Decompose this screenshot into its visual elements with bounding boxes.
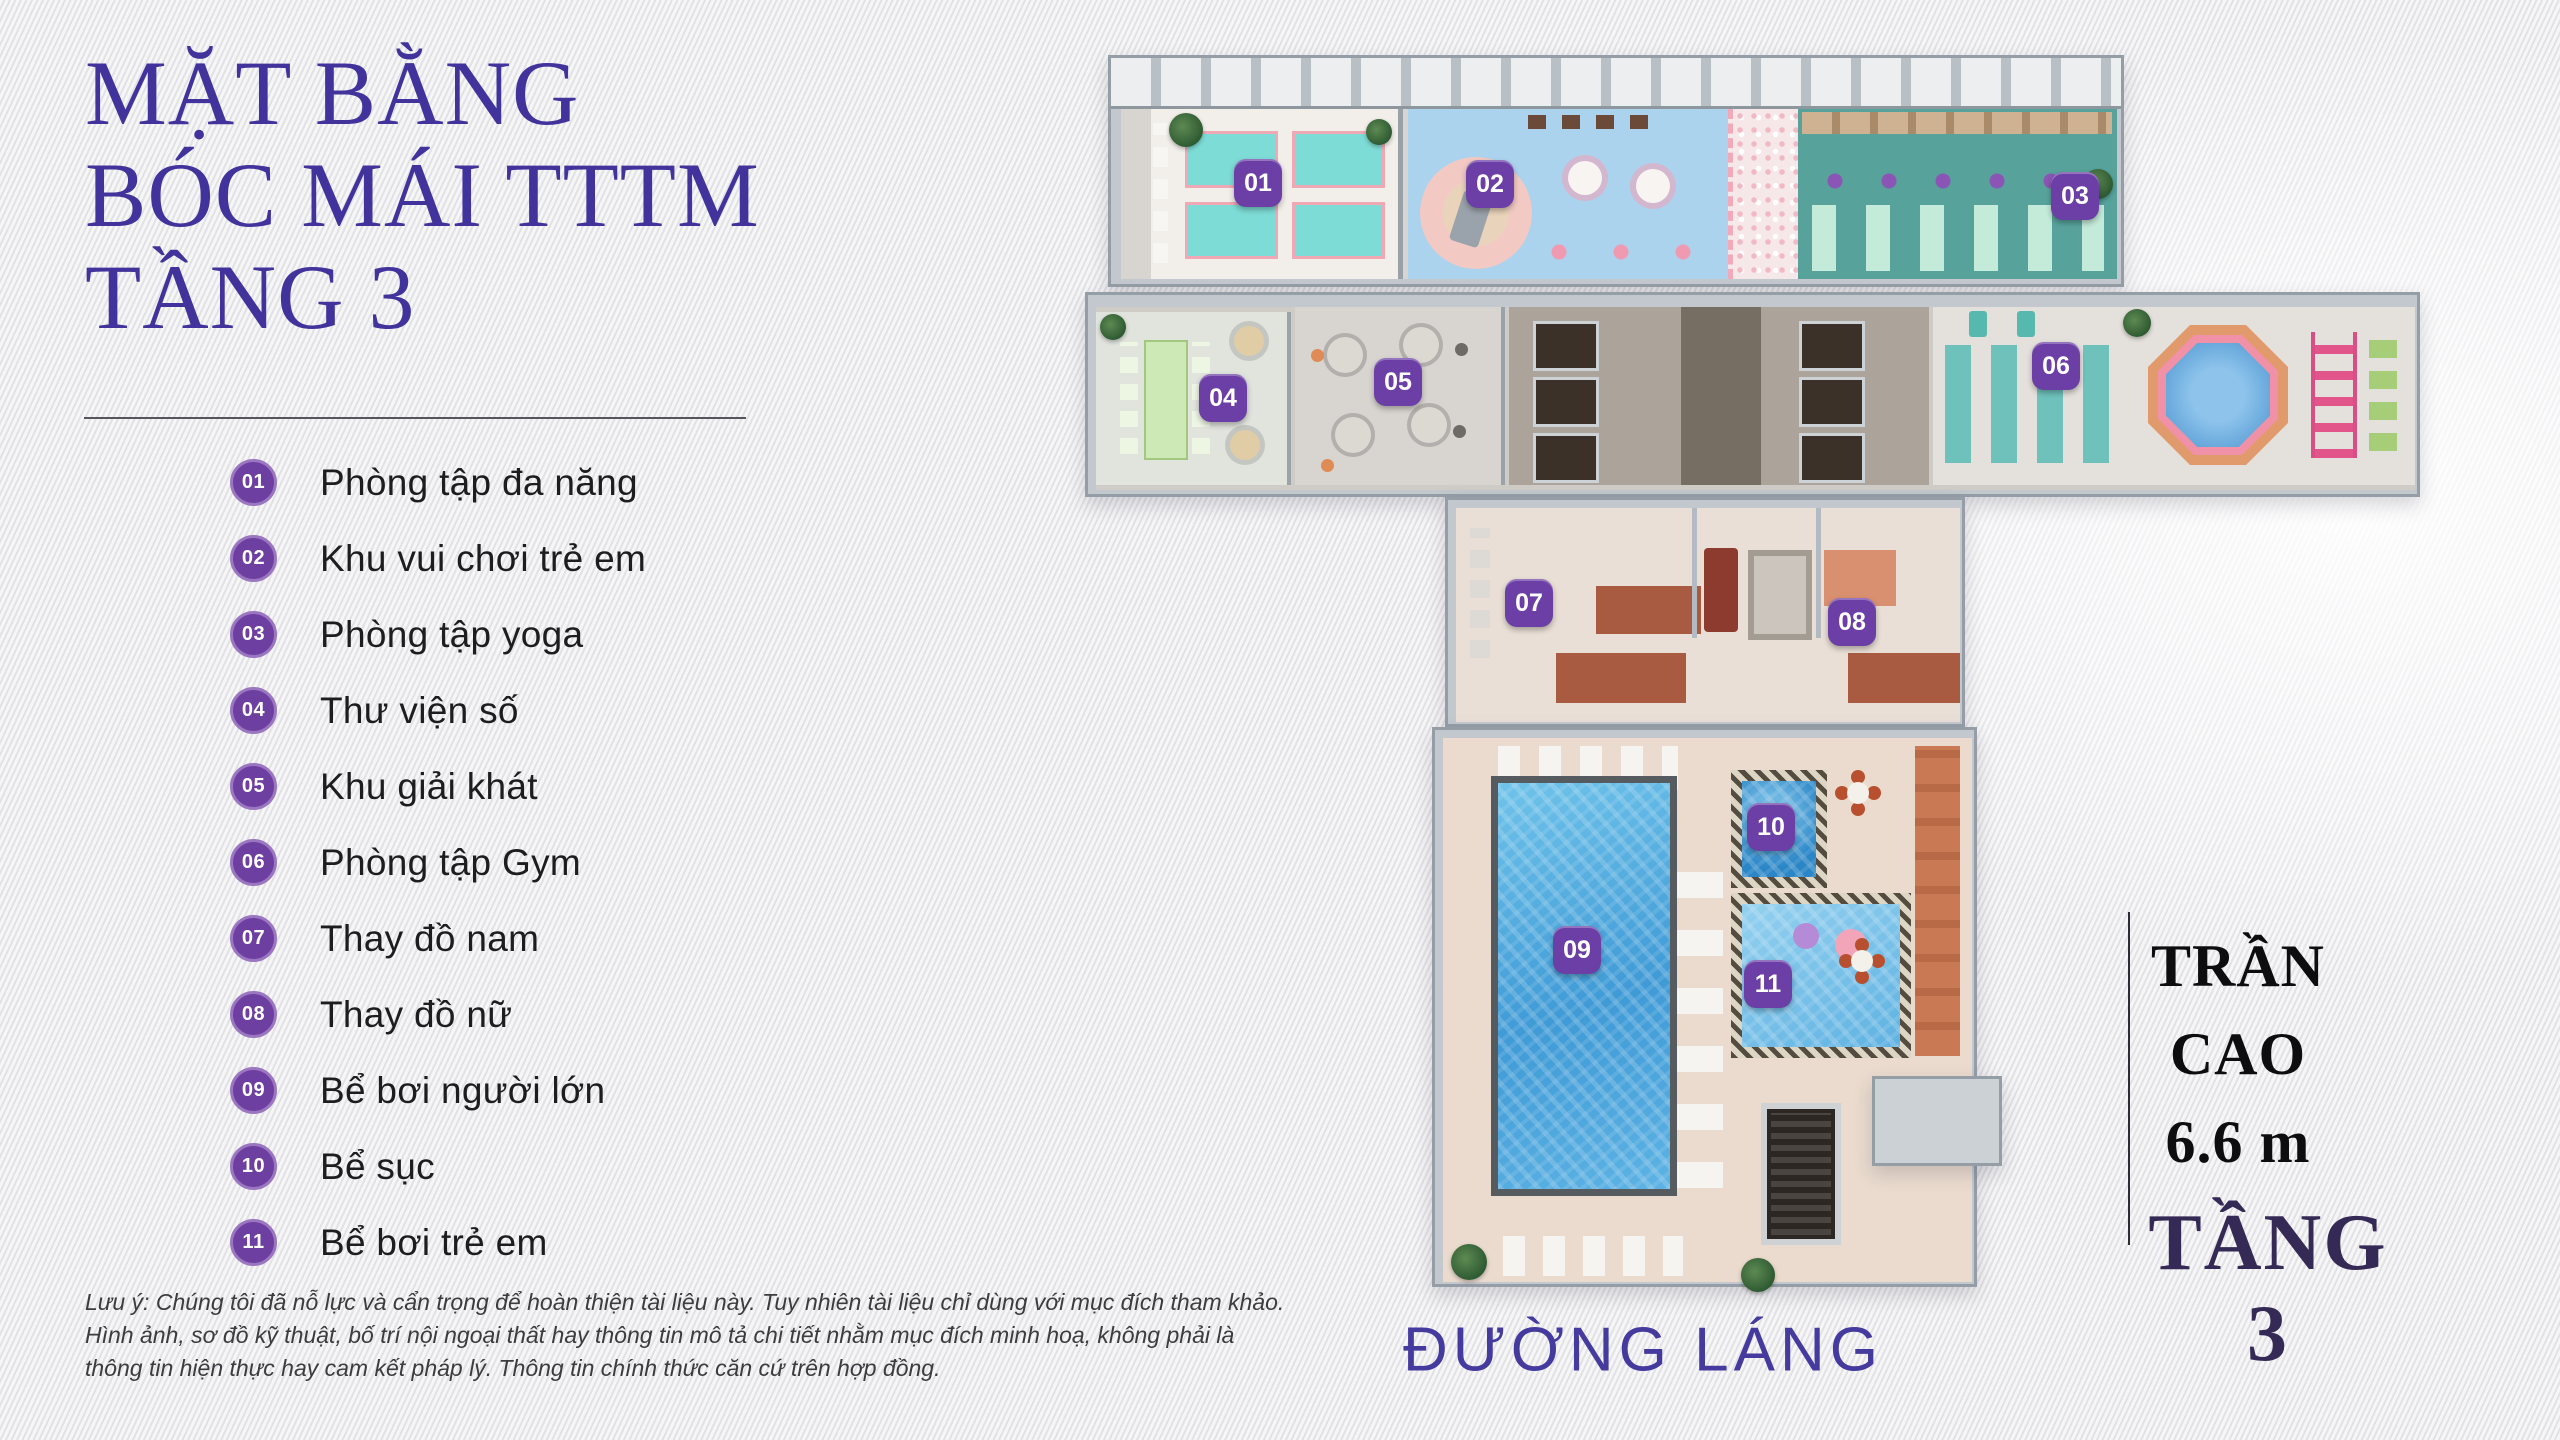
legend-label-06: Phòng tập Gym xyxy=(320,842,581,884)
ball-pit xyxy=(1728,109,1798,279)
elevator xyxy=(1799,377,1865,427)
cafe-chair-orange xyxy=(1311,349,1324,362)
library-table xyxy=(1144,340,1188,460)
room-02-kids-play xyxy=(1408,109,1728,279)
legend-label-09: Bể bơi người lớn xyxy=(320,1070,605,1112)
gym-benches-green xyxy=(2369,339,2397,451)
cafe-chair-gray xyxy=(1453,425,1466,438)
legend-badge-01: 01 xyxy=(230,459,277,506)
title-line-1: MẶT BẰNG xyxy=(85,42,845,144)
legend-label-01: Phòng tập đa năng xyxy=(320,462,638,504)
toy-dots xyxy=(1528,237,1708,267)
dining-table xyxy=(1847,782,1869,804)
legend-badge-03: 03 xyxy=(230,611,277,658)
library-chairs xyxy=(1120,342,1138,454)
wing-top-roofline xyxy=(1111,58,2121,109)
ceiling-line-1: TRẦN xyxy=(2128,922,2348,1010)
plant-icon xyxy=(2123,309,2151,337)
disclaimer-line-2: Hình ảnh, sơ đồ kỹ thuật, bố trí nội ngo… xyxy=(85,1319,1325,1352)
legend-item-01: 01 Phòng tập đa năng xyxy=(230,459,646,506)
gym-rack-pink xyxy=(2311,332,2357,458)
lounge-rug xyxy=(1748,550,1812,640)
legend-badge-04: 04 xyxy=(230,687,277,734)
plant-icon xyxy=(1169,113,1203,147)
locker-block xyxy=(1848,653,1960,703)
kids-table xyxy=(1568,161,1602,195)
plan-badge-01: 01 xyxy=(1234,159,1282,207)
plan-badge-11: 11 xyxy=(1744,960,1792,1008)
plan-badge-05: 05 xyxy=(1374,358,1422,406)
legend-badge-09: 09 xyxy=(230,1067,277,1114)
legend-badge-07: 07 xyxy=(230,915,277,962)
partition-wall xyxy=(1816,508,1821,638)
terracotta-bar xyxy=(1915,746,1960,1056)
reading-table xyxy=(1230,430,1260,460)
pool-09-adult xyxy=(1491,776,1677,1196)
disclaimer-line-3: thông tin hiện thực hay cam kết pháp lý.… xyxy=(85,1352,1325,1385)
room-06-gym xyxy=(1933,307,2415,485)
legend-label-05: Khu giải khát xyxy=(320,766,538,808)
room-04-library xyxy=(1096,312,1291,485)
cafe-table xyxy=(1411,407,1447,443)
legend-item-08: 08 Thay đồ nữ xyxy=(230,991,646,1038)
legend-label-02: Khu vui chơi trẻ em xyxy=(320,538,646,580)
cafe-chair-gray xyxy=(1455,343,1468,356)
title-line-3: TẦNG 3 xyxy=(85,246,845,348)
plan-badge-04: 04 xyxy=(1199,374,1247,422)
room-01-mats xyxy=(1185,131,1385,259)
plan-badge-09: 09 xyxy=(1553,926,1601,974)
legend-badge-02: 02 xyxy=(230,535,277,582)
legend-item-11: 11 Bể bơi trẻ em xyxy=(230,1219,646,1266)
elevator xyxy=(1799,433,1865,483)
page-title: MẶT BẰNG BÓC MÁI TTTM TẦNG 3 xyxy=(85,42,845,348)
deck-loungers-bottom xyxy=(1503,1236,1683,1276)
cafe-table xyxy=(1335,417,1371,453)
legend-label-03: Phòng tập yoga xyxy=(320,614,583,656)
floor-label: TẦNG 3 xyxy=(2118,1198,2418,1380)
plan-badge-08: 08 xyxy=(1828,598,1876,646)
service-core xyxy=(1509,307,1929,485)
plant-icon xyxy=(1100,314,1126,340)
dining-table xyxy=(1851,950,1873,972)
gym-machine xyxy=(2017,311,2035,337)
legend-label-10: Bể sục xyxy=(320,1146,435,1188)
plan-badge-03: 03 xyxy=(2051,172,2099,220)
pool-deck xyxy=(1432,727,1977,1287)
cafe-table xyxy=(1327,337,1363,373)
wood-benches xyxy=(1802,112,2112,134)
gym-loungers xyxy=(1945,345,2115,463)
legend-label-11: Bể bơi trẻ em xyxy=(320,1222,548,1264)
toy-shelf xyxy=(1528,115,1648,129)
stairs xyxy=(1761,1103,1841,1245)
locker-block xyxy=(1596,586,1701,634)
legend-item-04: 04 Thư viện số xyxy=(230,687,646,734)
plant-icon xyxy=(1741,1258,1775,1292)
elevator xyxy=(1799,321,1865,371)
legend-item-05: 05 Khu giải khát xyxy=(230,763,646,810)
legend-badge-06: 06 xyxy=(230,839,277,886)
plan-badge-07: 07 xyxy=(1505,579,1553,627)
street-label: ĐƯỜNG LÁNG xyxy=(1403,1315,1883,1386)
plan-badge-02: 02 xyxy=(1466,160,1514,208)
floorplan-poster: { "page": { "title_lines": ["MẶT BẰNG", … xyxy=(0,0,2560,1440)
plant-icon xyxy=(1366,119,1392,145)
legend-badge-11: 11 xyxy=(230,1219,277,1266)
locker-block xyxy=(1556,653,1686,703)
title-divider xyxy=(84,417,746,419)
plant-icon xyxy=(1451,1244,1487,1280)
legend-label-07: Thay đồ nam xyxy=(320,918,539,960)
cafe-chair-orange xyxy=(1321,459,1334,472)
legend-label-04: Thư viện số xyxy=(320,690,519,732)
elevator xyxy=(1533,377,1599,427)
plan-badge-06: 06 xyxy=(2032,342,2080,390)
bench-row xyxy=(1470,528,1490,658)
ceiling-line-2: CAO xyxy=(2128,1010,2348,1098)
disclaimer: Lưu ý: Chúng tôi đã nỗ lực và cẩn trọng … xyxy=(85,1286,1325,1385)
legend-item-02: 02 Khu vui chơi trẻ em xyxy=(230,535,646,582)
legend-item-03: 03 Phòng tập yoga xyxy=(230,611,646,658)
legend-badge-08: 08 xyxy=(230,991,277,1038)
wing-middle-interior xyxy=(1096,307,2415,490)
side-platform xyxy=(1872,1076,2002,1166)
ceiling-line-3: 6.6 m xyxy=(2128,1098,2348,1186)
room-01-bench-strip xyxy=(1153,123,1168,263)
core-corridor xyxy=(1681,307,1761,485)
pool-float-purple xyxy=(1793,923,1819,949)
legend-item-09: 09 Bể bơi người lớn xyxy=(230,1067,646,1114)
legend-badge-10: 10 xyxy=(230,1143,277,1190)
plan-badge-10: 10 xyxy=(1747,803,1795,851)
title-line-2: BÓC MÁI TTTM xyxy=(85,144,845,246)
legend-label-08: Thay đồ nữ xyxy=(320,994,512,1036)
ceiling-height-label: TRẦN CAO 6.6 m xyxy=(2128,922,2348,1186)
legend: 01 Phòng tập đa năng 02 Khu vui chơi trẻ… xyxy=(230,459,646,1266)
elevator xyxy=(1533,321,1599,371)
deck-interior xyxy=(1443,738,1972,1282)
legend-badge-05: 05 xyxy=(230,763,277,810)
elevator xyxy=(1533,433,1599,483)
jacuzzi-octagon xyxy=(2148,325,2288,465)
reading-table xyxy=(1234,326,1264,356)
lounge-sofa xyxy=(1704,548,1738,632)
wing-middle xyxy=(1085,292,2420,497)
legend-item-06: 06 Phòng tập Gym xyxy=(230,839,646,886)
partition-wall xyxy=(1692,508,1697,638)
gym-machine xyxy=(1969,311,1987,337)
deck-loungers-column xyxy=(1677,858,1723,1188)
kids-table xyxy=(1636,169,1670,203)
legend-item-07: 07 Thay đồ nam xyxy=(230,915,646,962)
legend-item-10: 10 Bể sục xyxy=(230,1143,646,1190)
